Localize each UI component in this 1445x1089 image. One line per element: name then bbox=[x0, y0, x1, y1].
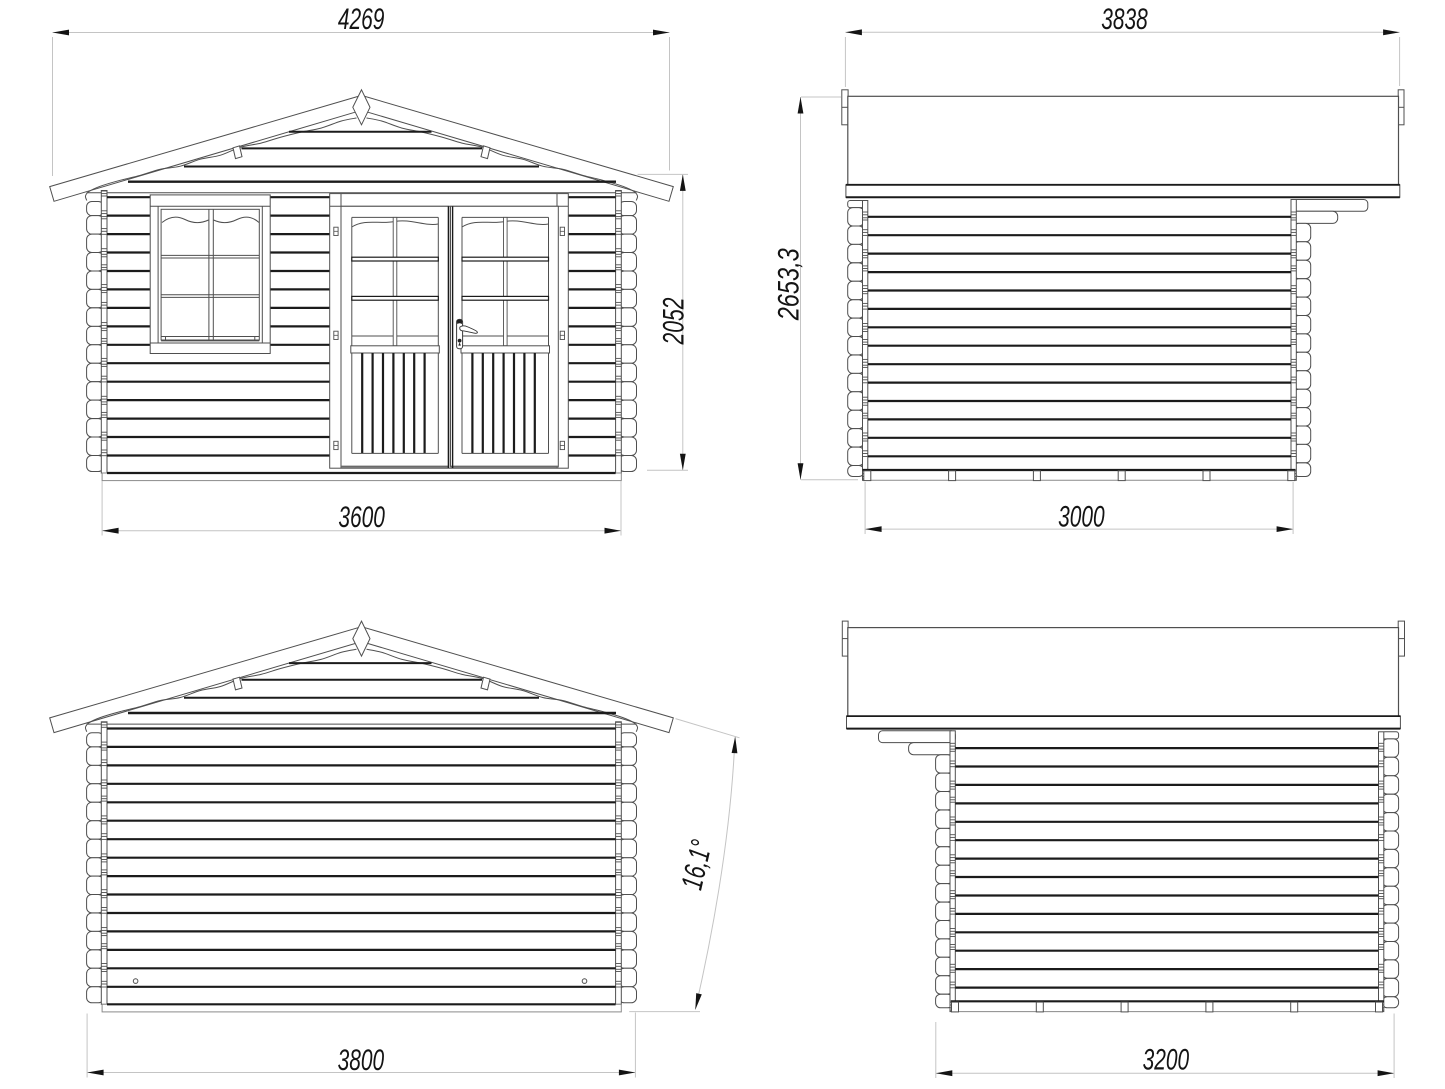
svg-text:3800: 3800 bbox=[338, 1044, 385, 1077]
svg-text:3838: 3838 bbox=[1101, 3, 1148, 36]
svg-text:4269: 4269 bbox=[338, 3, 385, 36]
svg-text:2052: 2052 bbox=[658, 297, 691, 345]
svg-text:2653,3: 2653,3 bbox=[773, 248, 806, 321]
svg-text:3200: 3200 bbox=[1143, 1044, 1190, 1077]
svg-text:3600: 3600 bbox=[338, 501, 385, 534]
svg-text:3000: 3000 bbox=[1058, 501, 1105, 534]
